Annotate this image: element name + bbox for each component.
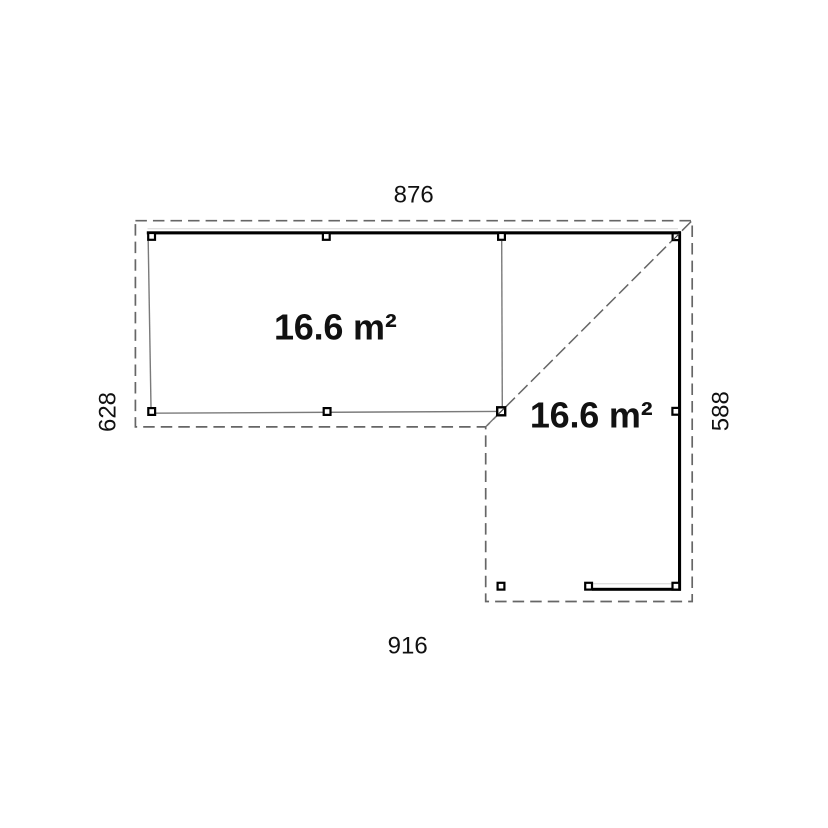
svg-text:16.6 m²: 16.6 m² xyxy=(530,394,653,435)
svg-text:628: 628 xyxy=(95,392,122,432)
svg-text:588: 588 xyxy=(708,391,735,431)
svg-text:16.6 m²: 16.6 m² xyxy=(274,307,397,348)
svg-text:916: 916 xyxy=(388,633,428,660)
svg-text:876: 876 xyxy=(394,181,434,208)
